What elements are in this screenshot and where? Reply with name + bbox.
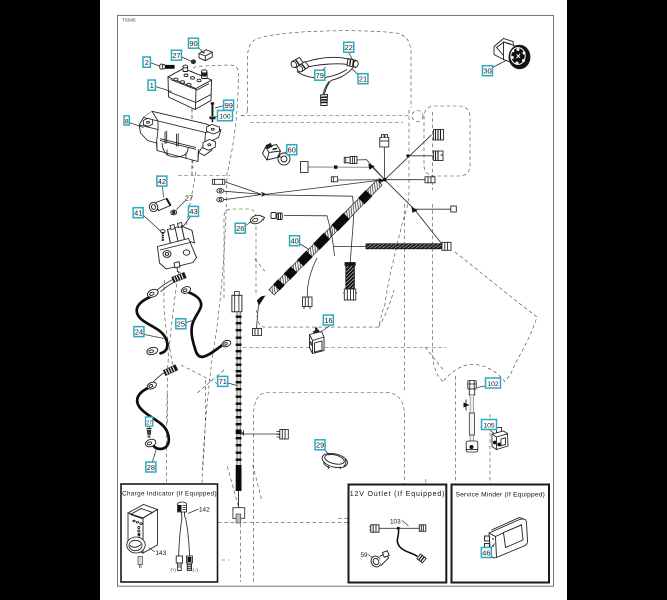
svg-text:59: 59 (361, 552, 369, 559)
svg-text:27: 27 (185, 194, 193, 203)
svg-text:79: 79 (316, 71, 324, 80)
svg-text:24: 24 (135, 327, 143, 336)
svg-text:27: 27 (172, 51, 180, 60)
svg-text:30: 30 (483, 67, 491, 76)
svg-text:26: 26 (236, 224, 244, 233)
svg-text:43: 43 (189, 207, 197, 216)
svg-text:105: 105 (483, 422, 495, 429)
svg-text:29: 29 (316, 441, 324, 450)
svg-text:(+): (+) (171, 568, 177, 573)
svg-text:102: 102 (487, 381, 499, 388)
svg-text:40: 40 (290, 237, 298, 246)
svg-text:21: 21 (359, 75, 367, 84)
svg-text:28: 28 (147, 463, 155, 472)
svg-text:100: 100 (219, 113, 231, 120)
svg-text:1: 1 (150, 81, 154, 90)
svg-text:8: 8 (125, 118, 129, 125)
svg-text:12V Outlet (If Equipped): 12V Outlet (If Equipped) (350, 491, 446, 498)
svg-text:Charge Indicator (If Equipped): Charge Indicator (If Equipped) (122, 491, 217, 498)
svg-text:71: 71 (219, 377, 227, 386)
svg-text:46: 46 (482, 548, 490, 557)
svg-text:TS045: TS045 (122, 18, 136, 23)
svg-text:16: 16 (324, 316, 332, 325)
svg-text:Service Minder (If Equipped): Service Minder (If Equipped) (456, 492, 545, 499)
svg-text:42: 42 (158, 177, 166, 186)
svg-text:99: 99 (225, 101, 233, 110)
svg-text:90: 90 (189, 39, 197, 48)
svg-text:143: 143 (156, 550, 167, 557)
svg-text:25: 25 (177, 320, 185, 329)
svg-text:(−): (−) (193, 568, 199, 573)
svg-text:103: 103 (390, 519, 401, 526)
svg-text:41: 41 (134, 209, 142, 218)
svg-text:2: 2 (145, 58, 149, 67)
svg-text:142: 142 (199, 507, 210, 514)
svg-text:27: 27 (146, 420, 152, 426)
svg-text:60: 60 (288, 146, 296, 155)
svg-text:22: 22 (345, 43, 353, 52)
